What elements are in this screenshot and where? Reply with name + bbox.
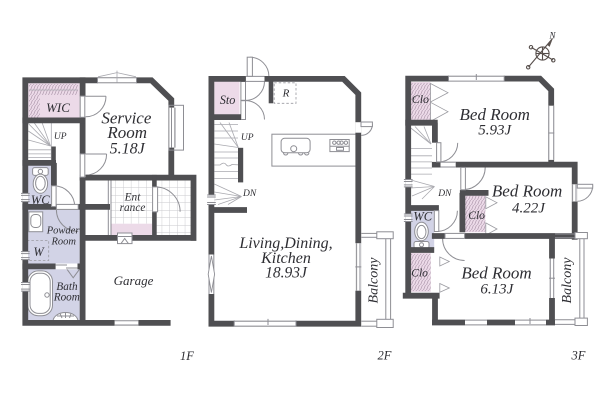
svg-text:Room: Room: [53, 291, 80, 303]
svg-text:1F: 1F: [180, 349, 194, 363]
svg-text:Powder: Powder: [46, 226, 81, 237]
svg-text:Clo: Clo: [411, 267, 428, 279]
svg-text:Balcony: Balcony: [560, 257, 575, 304]
svg-text:Bed Room: Bed Room: [461, 264, 531, 283]
svg-text:5.93J: 5.93J: [478, 123, 512, 139]
svg-text:2F: 2F: [378, 349, 392, 363]
svg-text:R: R: [282, 87, 290, 99]
svg-text:DN: DN: [437, 189, 452, 199]
svg-text:Room: Room: [50, 237, 76, 248]
svg-text:Bed Room: Bed Room: [492, 182, 562, 201]
svg-text:Balcony: Balcony: [366, 257, 381, 304]
svg-text:Bed Room: Bed Room: [460, 105, 530, 124]
svg-text:rance: rance: [120, 202, 146, 214]
svg-text:18.93J: 18.93J: [265, 265, 308, 282]
svg-text:DN: DN: [242, 189, 257, 199]
svg-text:N: N: [548, 31, 556, 41]
svg-text:3F: 3F: [571, 349, 586, 363]
svg-text:5.18J: 5.18J: [110, 141, 146, 158]
svg-text:Clo: Clo: [468, 210, 485, 222]
svg-text:Room: Room: [106, 123, 147, 142]
svg-text:4.22J: 4.22J: [512, 200, 546, 216]
svg-text:6.13J: 6.13J: [480, 281, 514, 297]
svg-text:Garage: Garage: [114, 273, 154, 288]
svg-text:WC: WC: [413, 210, 432, 224]
svg-text:WC: WC: [31, 193, 50, 207]
svg-text:UP: UP: [54, 132, 67, 142]
svg-text:WIC: WIC: [46, 100, 70, 115]
svg-text:Sto: Sto: [220, 93, 236, 107]
svg-text:Clo: Clo: [412, 92, 429, 106]
svg-text:UP: UP: [241, 133, 254, 143]
